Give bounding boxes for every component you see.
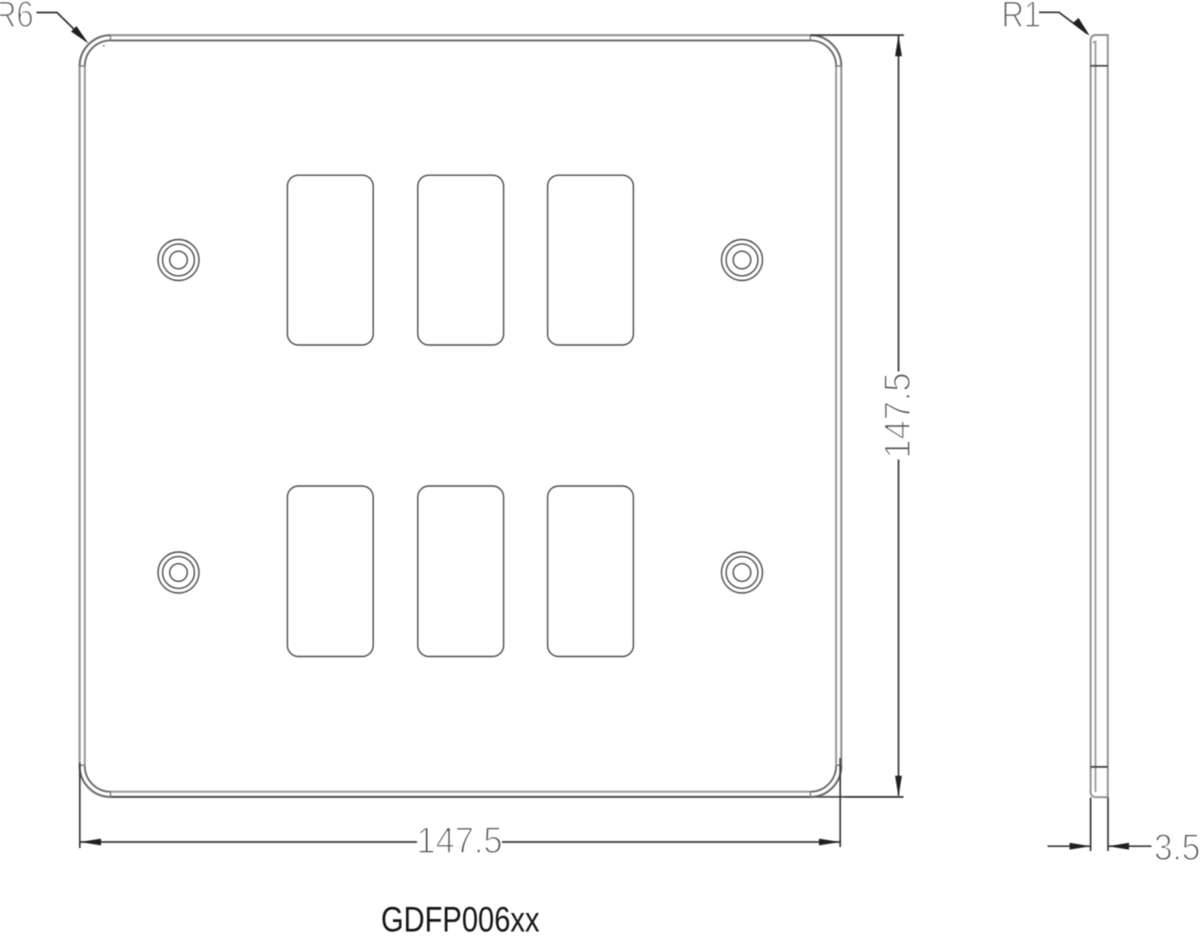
svg-text:147.5: 147.5 [877, 372, 918, 458]
svg-text:GDFP006xx: GDFP006xx [381, 900, 539, 936]
svg-text:R1: R1 [1002, 0, 1042, 36]
svg-text:R6: R6 [0, 0, 34, 36]
svg-text:147.5: 147.5 [416, 820, 502, 861]
svg-text:3.5: 3.5 [1154, 827, 1200, 868]
